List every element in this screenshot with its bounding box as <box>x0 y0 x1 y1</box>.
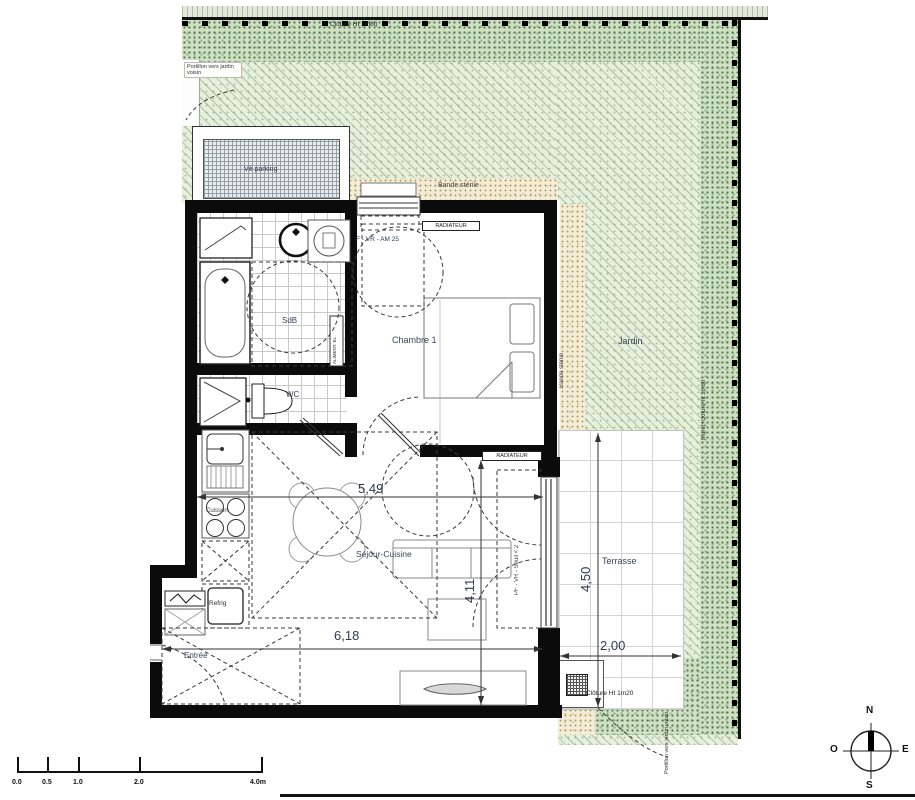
wc-label: WC <box>286 390 299 399</box>
washbasin <box>280 224 312 256</box>
scale-tick-0: 0.0 <box>12 779 22 786</box>
bathtub <box>200 262 250 364</box>
dim-entry-width: 6,18 <box>334 628 359 643</box>
gate-bottom-label: Portillon vers jardin voisin <box>664 694 670 774</box>
radiator-living-label: RADIATEUR <box>482 451 542 461</box>
compass-south-label: S <box>866 780 873 791</box>
bottom-rule <box>280 794 915 797</box>
bike-parking-label: Vé parking <box>244 166 277 173</box>
wall-right-label: Muret+clôture ht 1m80 <box>701 322 707 440</box>
sterile-vertical-label: Bande stérile <box>559 318 565 388</box>
french-door-bay <box>541 477 557 628</box>
bedroom-label: Chambre 1 <box>392 335 437 345</box>
scale-bar <box>18 757 262 773</box>
dim-living-depth: 4,11 <box>462 555 477 603</box>
radiator-bedroom-label: RADIATEUR <box>422 221 480 231</box>
dishwasher-slot <box>202 541 249 581</box>
kitchen-hob <box>202 494 249 538</box>
bathroom-cabinet <box>200 218 252 258</box>
fridge-label: Refrig <box>209 600 226 607</box>
compass-north-label: N <box>866 705 873 716</box>
bathroom-label: SdB <box>282 316 297 325</box>
bedroom-window-label: F - VR - AM 25 <box>356 236 399 243</box>
dim-living-width: 5,49 <box>358 481 383 496</box>
french-door-label: PF - VR - Seuil < 2 <box>514 500 520 595</box>
compass-rose <box>843 723 899 779</box>
wc-shelf <box>200 378 246 426</box>
hob-label: Cuisson <box>206 508 228 514</box>
compass-west-label: O <box>830 744 838 755</box>
scale-tick-2: 1.0 <box>73 779 83 786</box>
fence-top-label: Clôture Ht 1m80 <box>330 21 377 28</box>
plan-overlay <box>0 0 915 800</box>
gate-top-label: Portillon vers jardin voisin <box>184 62 242 78</box>
duct-label: ALIMENT. EL <box>332 318 337 364</box>
dim-terrace-width: 2,00 <box>600 638 625 653</box>
floor-plan: Clôture Ht 1m80 Portillon vers jardin vo… <box>0 0 915 800</box>
console <box>400 671 526 705</box>
dining-table <box>289 483 365 562</box>
scale-tick-4: 4.0m <box>250 779 266 786</box>
living-kitchen-label: Séjour-Cuisine <box>356 549 412 559</box>
garden-label: Jardin <box>618 336 643 346</box>
fence-bottom-label: Clôture Ht 1m20 <box>586 690 633 697</box>
compass-east-label: E <box>902 744 909 755</box>
sofa <box>393 540 511 578</box>
bed <box>424 298 540 444</box>
kitchen-sink <box>202 430 249 492</box>
sterile-horizontal-label: Bande stérile <box>438 182 479 189</box>
bedroom-window <box>357 183 420 230</box>
terrace-label: Terrasse <box>602 556 637 566</box>
entry-label: Entrée <box>184 651 208 660</box>
scale-tick-1: 0.5 <box>42 779 52 786</box>
scale-tick-3: 2.0 <box>134 779 144 786</box>
dim-terrace-depth: 4,50 <box>578 540 593 592</box>
washing-machine <box>308 220 350 262</box>
